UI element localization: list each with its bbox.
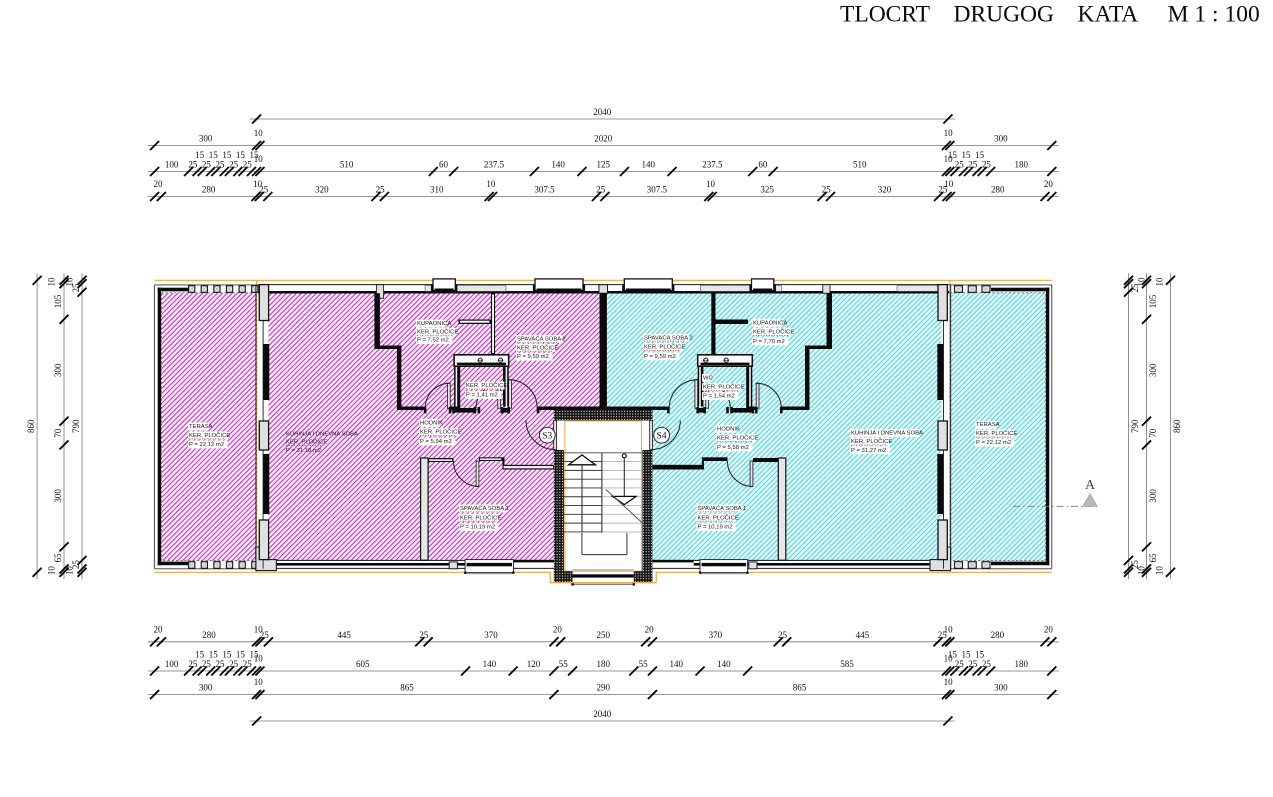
svg-text:10: 10 [47, 566, 57, 576]
svg-text:280: 280 [202, 185, 216, 195]
svg-text:15: 15 [961, 150, 971, 160]
svg-text:TERASA: TERASA [189, 424, 213, 430]
svg-text:15: 15 [975, 650, 985, 660]
svg-text:KER. PLOČICE: KER. PLOČICE [189, 432, 230, 439]
svg-text:300: 300 [1148, 489, 1158, 503]
svg-text:15: 15 [222, 150, 232, 160]
svg-text:320: 320 [315, 185, 329, 195]
svg-text:KER. PLOČICE: KER. PLOČICE [698, 514, 739, 521]
svg-text:P = 5,94 m2: P = 5,94 m2 [420, 439, 452, 445]
svg-text:250: 250 [596, 630, 610, 640]
svg-text:25: 25 [419, 630, 429, 640]
svg-text:445: 445 [337, 630, 351, 640]
svg-text:290: 290 [596, 683, 610, 693]
svg-text:280: 280 [991, 630, 1005, 640]
svg-text:KER. PLOČICE: KER. PLOČICE [517, 344, 558, 351]
svg-text:15: 15 [195, 650, 205, 660]
svg-text:25: 25 [243, 659, 253, 669]
svg-text:280: 280 [991, 185, 1005, 195]
svg-text:65: 65 [53, 553, 63, 563]
svg-text:300: 300 [199, 683, 213, 693]
svg-text:10: 10 [944, 179, 954, 189]
svg-text:P = 7,52 m2: P = 7,52 m2 [417, 338, 449, 344]
svg-text:A: A [1085, 478, 1096, 493]
svg-text:SPAVAĆA SOBA 2: SPAVAĆA SOBA 2 [517, 335, 566, 342]
svg-text:SPAVAĆA SOBA 1: SPAVAĆA SOBA 1 [460, 505, 509, 512]
svg-text:300: 300 [53, 489, 63, 503]
svg-text:300: 300 [994, 134, 1008, 144]
svg-text:140: 140 [717, 659, 731, 669]
svg-text:25: 25 [955, 160, 965, 170]
svg-text:20: 20 [645, 624, 655, 634]
svg-text:25: 25 [982, 160, 992, 170]
svg-text:15: 15 [209, 650, 219, 660]
svg-text:585: 585 [840, 659, 854, 669]
svg-text:105: 105 [53, 294, 63, 308]
svg-text:25: 25 [968, 659, 978, 669]
svg-text:25: 25 [216, 160, 226, 170]
svg-text:15: 15 [236, 650, 246, 660]
svg-text:10: 10 [47, 277, 57, 287]
svg-text:25: 25 [822, 185, 832, 195]
svg-text:180: 180 [1014, 659, 1028, 669]
svg-text:25: 25 [188, 659, 198, 669]
svg-text:25: 25 [376, 185, 386, 195]
svg-text:P = 22,12 m2: P = 22,12 m2 [976, 440, 1011, 446]
svg-text:300: 300 [53, 363, 63, 377]
svg-text:KER. PLOČICE: KER. PLOČICE [420, 429, 461, 436]
svg-text:20: 20 [1044, 179, 1054, 189]
svg-text:HODNIK: HODNIK [420, 420, 443, 426]
svg-text:P = 1,54 m2: P = 1,54 m2 [703, 394, 735, 400]
svg-text:25: 25 [982, 659, 992, 669]
svg-text:P = 22,12 m2: P = 22,12 m2 [189, 442, 224, 448]
svg-text:KER. PLOČICE: KER. PLOČICE [976, 430, 1017, 437]
svg-text:25: 25 [955, 659, 965, 669]
svg-text:KER. PLOČICE: KER. PLOČICE [717, 435, 758, 442]
svg-text:790: 790 [71, 419, 81, 433]
svg-text:KER. PLOČICE: KER. PLOČICE [417, 328, 458, 335]
svg-text:SPAVAĆA SOBA 1: SPAVAĆA SOBA 1 [698, 505, 747, 512]
svg-text:2020: 2020 [594, 134, 613, 144]
svg-text:15: 15 [195, 150, 205, 160]
svg-text:65: 65 [1148, 553, 1158, 563]
svg-text:20: 20 [553, 624, 563, 634]
svg-text:S3: S3 [542, 431, 552, 441]
svg-text:180: 180 [596, 659, 610, 669]
svg-text:307.5: 307.5 [534, 185, 555, 195]
svg-text:10: 10 [1155, 566, 1165, 576]
svg-text:25: 25 [71, 283, 81, 293]
svg-text:300: 300 [1148, 363, 1158, 377]
svg-text:140: 140 [641, 160, 655, 170]
svg-text:10: 10 [254, 677, 264, 687]
svg-text:300: 300 [994, 683, 1008, 693]
svg-text:10: 10 [944, 128, 954, 138]
svg-text:10: 10 [65, 566, 75, 576]
svg-text:P = 9,59 m2: P = 9,59 m2 [517, 354, 549, 360]
svg-text:25: 25 [243, 160, 253, 170]
svg-text:10: 10 [1155, 277, 1165, 287]
svg-text:70: 70 [53, 428, 63, 438]
svg-text:10: 10 [254, 128, 264, 138]
svg-text:SPAVAĆA SOBA 2: SPAVAĆA SOBA 2 [644, 334, 693, 341]
svg-text:15: 15 [236, 150, 246, 160]
svg-text:P = 7,70 m2: P = 7,70 m2 [753, 339, 785, 345]
svg-text:280: 280 [202, 630, 216, 640]
svg-text:P = 9,59 m2: P = 9,59 m2 [644, 354, 676, 360]
svg-text:25: 25 [596, 185, 606, 195]
svg-text:25: 25 [216, 659, 226, 669]
svg-text:10: 10 [486, 179, 496, 189]
svg-text:WC: WC [703, 375, 714, 381]
svg-text:25: 25 [188, 160, 198, 170]
svg-text:P = 10,19 m2: P = 10,19 m2 [698, 525, 733, 531]
svg-text:P = 10,19 m2: P = 10,19 m2 [460, 525, 495, 531]
svg-text:180: 180 [1014, 160, 1028, 170]
svg-text:2040: 2040 [593, 107, 612, 117]
svg-text:15: 15 [975, 150, 985, 160]
svg-text:445: 445 [856, 630, 870, 640]
svg-text:237.5: 237.5 [702, 160, 723, 170]
svg-text:KER. PLOČICE: KER. PLOČICE [286, 439, 327, 446]
svg-text:865: 865 [400, 683, 414, 693]
svg-text:140: 140 [670, 659, 684, 669]
svg-text:125: 125 [596, 160, 610, 170]
svg-text:KUHINJA I DNEVNA SOBA: KUHINJA I DNEVNA SOBA [851, 431, 923, 437]
svg-text:TERASA: TERASA [976, 422, 1000, 428]
svg-text:860: 860 [1172, 419, 1182, 433]
svg-text:10: 10 [706, 179, 716, 189]
svg-text:237.5: 237.5 [484, 160, 505, 170]
svg-text:140: 140 [551, 160, 565, 170]
svg-text:25: 25 [229, 659, 239, 669]
svg-text:15: 15 [948, 150, 958, 160]
svg-text:605: 605 [356, 659, 370, 669]
svg-text:15: 15 [209, 150, 219, 160]
svg-text:120: 120 [527, 659, 541, 669]
svg-text:20: 20 [154, 624, 164, 634]
svg-text:25: 25 [968, 160, 978, 170]
svg-text:KUPAONICA: KUPAONICA [753, 320, 787, 326]
svg-text:25: 25 [260, 630, 270, 640]
svg-text:P = 1,41 m2: P = 1,41 m2 [466, 393, 498, 399]
svg-text:370: 370 [709, 630, 723, 640]
svg-text:370: 370 [484, 630, 498, 640]
svg-text:KER. PLOČICE: KER. PLOČICE [703, 384, 744, 391]
svg-text:105: 105 [1148, 294, 1158, 308]
svg-text:P = 31,18 m2: P = 31,18 m2 [286, 448, 321, 454]
svg-text:320: 320 [878, 185, 892, 195]
svg-text:20: 20 [153, 179, 163, 189]
svg-text:KER. PLOČICE: KER. PLOČICE [851, 438, 892, 445]
svg-text:10: 10 [254, 654, 264, 664]
svg-text:60: 60 [439, 160, 449, 170]
svg-text:307.5: 307.5 [647, 185, 668, 195]
svg-text:KER. PLOČICE: KER. PLOČICE [466, 382, 507, 389]
svg-text:KUPAONICA: KUPAONICA [417, 321, 451, 327]
svg-text:140: 140 [483, 659, 497, 669]
svg-text:25: 25 [1130, 283, 1140, 293]
svg-text:510: 510 [853, 160, 867, 170]
svg-text:2040: 2040 [593, 709, 612, 719]
svg-text:100: 100 [165, 160, 179, 170]
svg-text:15: 15 [948, 650, 958, 660]
svg-text:S4: S4 [657, 431, 667, 441]
svg-text:55: 55 [639, 659, 649, 669]
svg-text:25: 25 [229, 160, 239, 170]
svg-text:100: 100 [165, 659, 179, 669]
svg-text:300: 300 [199, 134, 213, 144]
svg-text:25: 25 [259, 185, 269, 195]
svg-text:10: 10 [944, 624, 954, 634]
svg-text:790: 790 [1130, 419, 1140, 433]
svg-text:55: 55 [559, 659, 569, 669]
svg-text:860: 860 [26, 419, 36, 433]
svg-text:70: 70 [1148, 428, 1158, 438]
svg-text:310: 310 [430, 185, 444, 195]
svg-text:25: 25 [202, 659, 212, 669]
svg-text:TLOCRT DRUGOG KATA M: TLOCRT DRUGOG KATA M 1 : 100 [840, 2, 1260, 28]
svg-text:10: 10 [254, 154, 264, 164]
svg-text:25: 25 [202, 160, 212, 170]
svg-text:P = 31,27 m2: P = 31,27 m2 [851, 448, 886, 454]
svg-text:KUHINJA I DNEVNA SOBA: KUHINJA I DNEVNA SOBA [286, 432, 358, 438]
svg-text:KER. PLOČICE: KER. PLOČICE [753, 329, 794, 336]
svg-text:HODNIK: HODNIK [717, 426, 740, 432]
svg-text:15: 15 [961, 650, 971, 660]
svg-text:KER. PLOČICE: KER. PLOČICE [460, 514, 501, 521]
svg-text:20: 20 [1044, 624, 1054, 634]
svg-text:325: 325 [760, 185, 774, 195]
svg-text:865: 865 [793, 683, 807, 693]
svg-text:60: 60 [758, 160, 768, 170]
svg-text:15: 15 [222, 650, 232, 660]
svg-text:25: 25 [778, 630, 788, 640]
svg-text:P = 5,58 m2: P = 5,58 m2 [717, 445, 749, 451]
svg-text:510: 510 [340, 160, 354, 170]
svg-text:10: 10 [944, 677, 954, 687]
svg-text:KER. PLOČICE: KER. PLOČICE [644, 344, 685, 351]
